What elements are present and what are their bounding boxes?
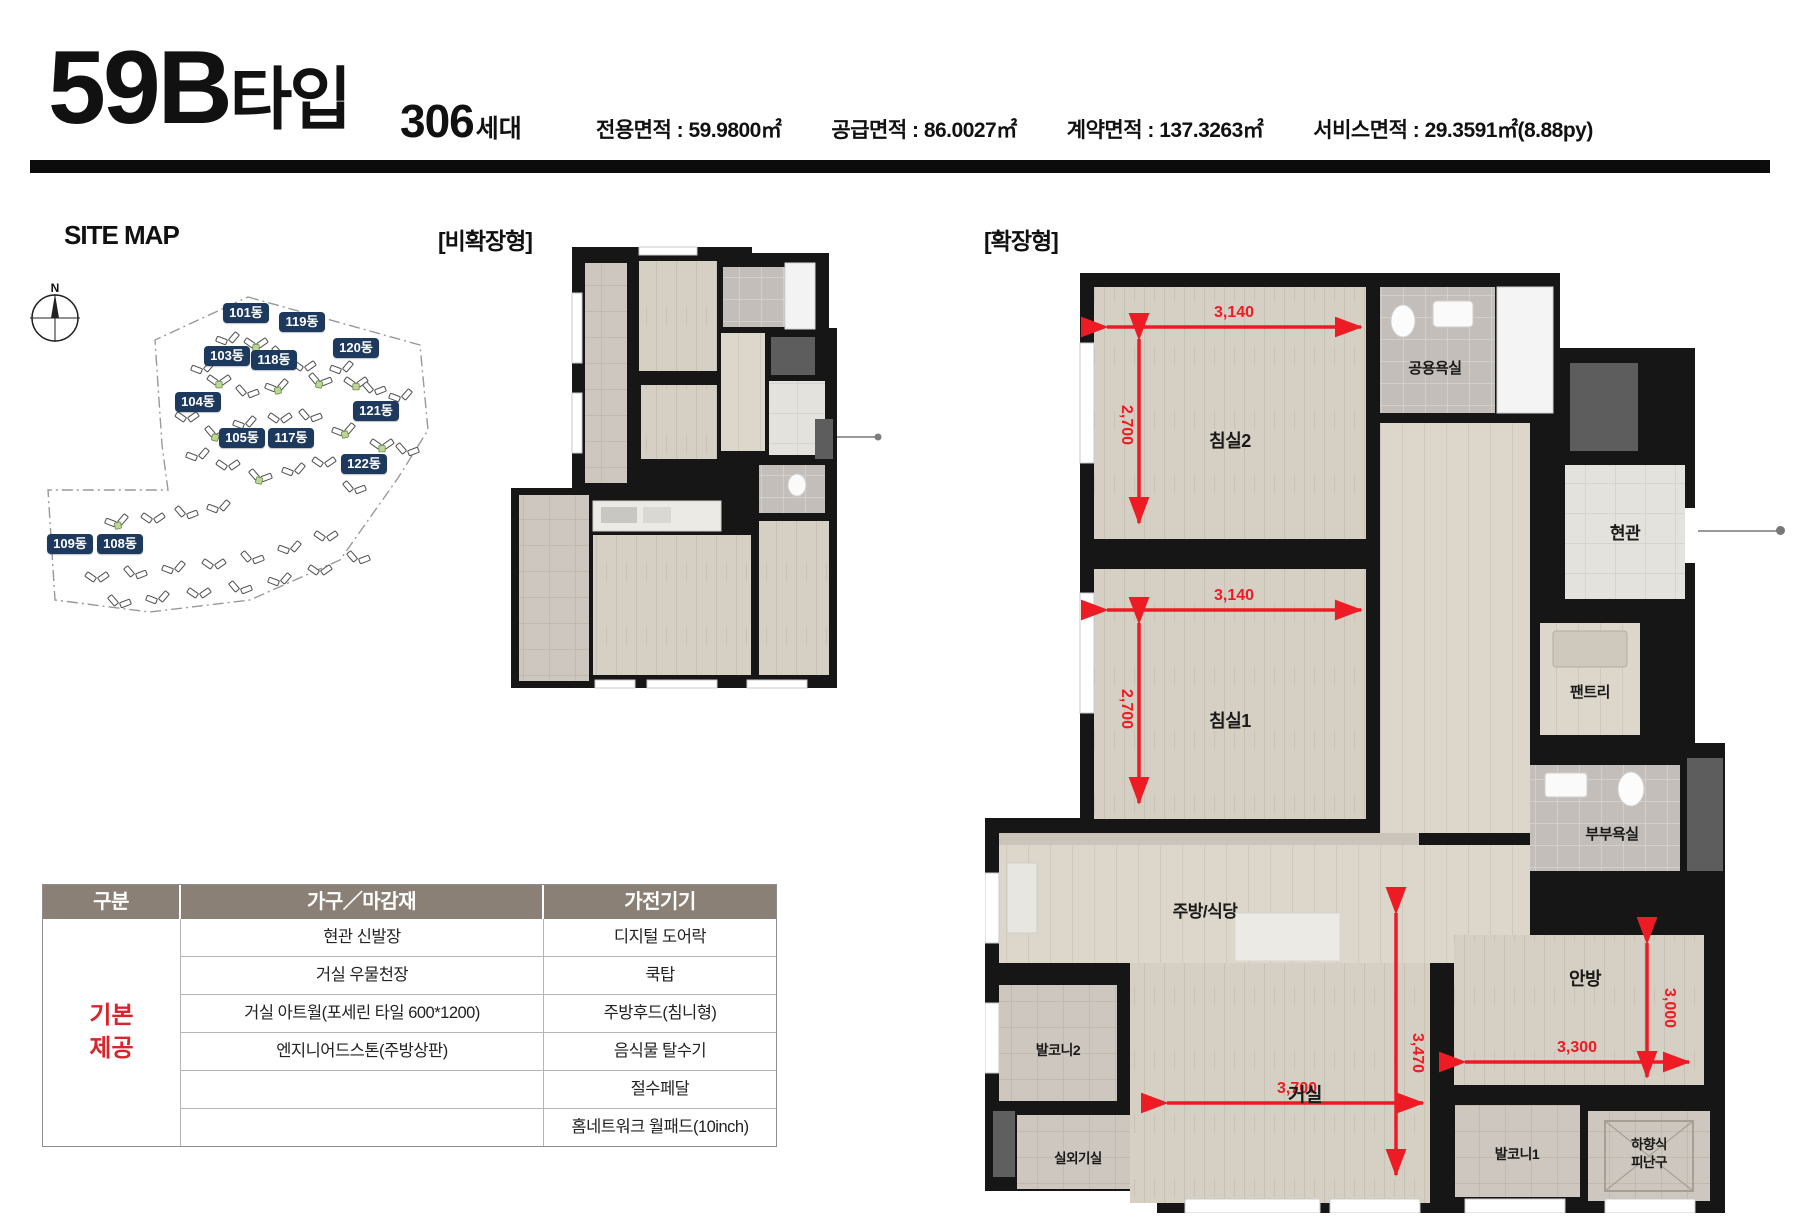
dim-bedroom1-height: 2,700 xyxy=(1118,689,1135,729)
building-label: 105동 xyxy=(219,428,265,448)
building-icon xyxy=(306,372,333,391)
furniture-cell: 거실 아트월(포세린 타일 600*1200) xyxy=(181,995,544,1032)
building-icon xyxy=(207,375,232,388)
building-icon xyxy=(361,381,387,397)
furniture-cell: 엔지니어드스톤(주방상판) xyxy=(181,1033,544,1070)
unit-type-name: 59B xyxy=(48,36,230,140)
building-label: 120동 xyxy=(333,338,379,358)
table-row: 현관 신발장 디지털 도어락 xyxy=(181,919,776,957)
room-master-bedroom: 안방 xyxy=(1569,969,1602,989)
appliance-cell: 디지털 도어락 xyxy=(544,919,776,956)
room-kitchen: 주방/식당 xyxy=(1173,902,1239,921)
room-master-bath: 부부욕실 xyxy=(1585,826,1638,843)
building-icon xyxy=(314,531,339,541)
building-label: 119동 xyxy=(279,312,325,332)
area-stat: 서비스면적 : 29.3591㎡(8.88py) xyxy=(1313,114,1593,144)
area-stats: 전용면적 : 59.9800㎡ 공급면적 : 86.0027㎡ 계약면적 : 1… xyxy=(596,114,1593,144)
appliance-cell: 쿡탑 xyxy=(544,957,776,994)
room-bedroom1: 침실1 xyxy=(1209,711,1251,731)
spec-group-label: 기본 제공 xyxy=(43,919,181,1146)
building-icon xyxy=(104,513,131,532)
furniture-cell xyxy=(181,1109,544,1146)
building-label: 104동 xyxy=(175,392,221,412)
expanded-floor-plan: 3,140 2,700 3,140 2,700 3,470 3,700 3,30… xyxy=(985,273,1735,1213)
table-row: 거실 아트월(포세린 타일 600*1200) 주방후드(침니형) xyxy=(181,995,776,1033)
building-label: 122동 xyxy=(341,454,387,474)
room-balcony2: 발코니2 xyxy=(1036,1042,1081,1058)
building-icon xyxy=(234,384,260,400)
appliance-cell: 절수페달 xyxy=(544,1071,776,1108)
furniture-cell xyxy=(181,1071,544,1108)
building-icon xyxy=(215,331,241,347)
building-icon xyxy=(185,447,211,463)
building-icon xyxy=(312,457,337,467)
dim-master-height: 3,000 xyxy=(1661,988,1678,1028)
appliance-cell: 음식물 탈수기 xyxy=(544,1033,776,1070)
unit-count-suffix: 세대 xyxy=(476,117,522,142)
building-icon xyxy=(268,413,293,423)
table-row: 엔지니어드스톤(주방상판) 음식물 탈수기 xyxy=(181,1033,776,1071)
building-icon xyxy=(202,559,227,569)
building-label: 109동 xyxy=(47,534,93,554)
floorplan-brochure-page: 59B타입 306 세대 전용면적 : 59.9800㎡ 공급면적 : 86.0… xyxy=(0,0,1800,1227)
area-stat: 전용면적 : 59.9800㎡ xyxy=(596,114,781,144)
building-label: 103동 xyxy=(204,346,250,366)
room-balcony1: 발코니1 xyxy=(1495,1146,1540,1162)
unit-count-number: 306 xyxy=(400,98,474,144)
page-title: 59B타입 xyxy=(48,36,349,140)
building-icon xyxy=(227,580,253,596)
spec-table: 구분 가구／마감재 가전기기 기본 제공 현관 신발장 디지털 도어락 거실 우… xyxy=(42,884,777,1147)
header-divider-bar xyxy=(30,160,1770,173)
building-label: 118동 xyxy=(251,350,297,370)
building-icon xyxy=(141,513,166,523)
building-icon xyxy=(281,462,307,478)
spec-rows: 현관 신발장 디지털 도어락 거실 우물천장 쿡탑 거실 아트월(포세린 타일 … xyxy=(181,919,776,1146)
building-icon xyxy=(216,460,241,470)
spec-header-furniture: 가구／마감재 xyxy=(181,885,544,919)
area-stat: 계약면적 : 137.3263㎡ xyxy=(1067,114,1264,144)
building-icon xyxy=(246,468,273,487)
building-icon xyxy=(206,499,232,515)
spec-table-header: 구분 가구／마감재 가전기기 xyxy=(43,885,776,919)
dim-bedroom2-width: 3,140 xyxy=(1214,304,1254,321)
room-escape-hatch-line2: 피난구 xyxy=(1631,1154,1667,1170)
building-icon xyxy=(161,560,187,576)
room-living: 거실 xyxy=(1288,1084,1322,1106)
building-icon xyxy=(264,378,291,397)
table-row: 홈네트워크 월패드(10inch) xyxy=(181,1109,776,1146)
appliance-cell: 주방후드(침니형) xyxy=(544,995,776,1032)
building-icon xyxy=(122,565,148,581)
furniture-cell: 거실 우물천장 xyxy=(181,957,544,994)
site-map: 101동 119동 120동 103동 118동 104동 121동 105동 … xyxy=(40,240,470,640)
building-label: 117동 xyxy=(268,428,314,448)
dim-living-height: 3,470 xyxy=(1409,1033,1426,1073)
building-icon xyxy=(85,572,110,582)
building-icon xyxy=(370,439,395,452)
room-outdoor-unit: 실외기실 xyxy=(1054,1150,1102,1166)
area-stat: 공급면적 : 86.0027㎡ xyxy=(831,114,1016,144)
building-icon xyxy=(297,408,323,424)
building-label: 121동 xyxy=(353,401,399,421)
building-icon xyxy=(175,412,200,422)
building-label: 108동 xyxy=(97,534,143,554)
building-icon xyxy=(394,442,420,458)
room-entrance: 현관 xyxy=(1610,524,1641,543)
entry-door-swing-dot xyxy=(1776,526,1785,535)
building-icon xyxy=(329,360,355,376)
room-common-bath: 공용욕실 xyxy=(1408,360,1461,377)
entry-door-line xyxy=(837,434,882,441)
building-label: 101동 xyxy=(223,303,269,323)
building-icon xyxy=(277,540,303,556)
building-icon xyxy=(267,572,293,588)
building-icon xyxy=(239,550,265,566)
building-icon xyxy=(173,505,199,521)
spec-header-category: 구분 xyxy=(43,885,181,919)
unit-count: 306 세대 xyxy=(400,98,522,144)
appliance-cell: 홈네트워크 월패드(10inch) xyxy=(544,1109,776,1146)
spec-header-appliance: 가전기기 xyxy=(544,885,776,919)
building-icon xyxy=(187,588,212,598)
room-escape-hatch-line1: 하향식 xyxy=(1631,1136,1667,1152)
unit-type-suffix: 타입 xyxy=(230,66,349,134)
room-bedroom2: 침실2 xyxy=(1209,431,1251,451)
non-expanded-floor-plan xyxy=(497,233,887,691)
table-row: 절수페달 xyxy=(181,1071,776,1109)
expanded-plan-label: [확장형] xyxy=(984,222,1058,256)
building-icon xyxy=(331,422,358,441)
dim-master-width: 3,300 xyxy=(1557,1039,1597,1056)
dim-bedroom1-width: 3,140 xyxy=(1214,587,1254,604)
dim-bedroom2-height: 2,700 xyxy=(1118,405,1135,445)
building-icon xyxy=(341,480,367,496)
table-row: 거실 우물천장 쿡탑 xyxy=(181,957,776,995)
furniture-cell: 현관 신발장 xyxy=(181,919,544,956)
building-icon xyxy=(145,590,171,606)
entry-door-swing-line xyxy=(1698,530,1780,532)
room-pantry: 팬트리 xyxy=(1570,684,1610,701)
building-icon xyxy=(345,550,371,566)
building-icon xyxy=(308,565,333,575)
